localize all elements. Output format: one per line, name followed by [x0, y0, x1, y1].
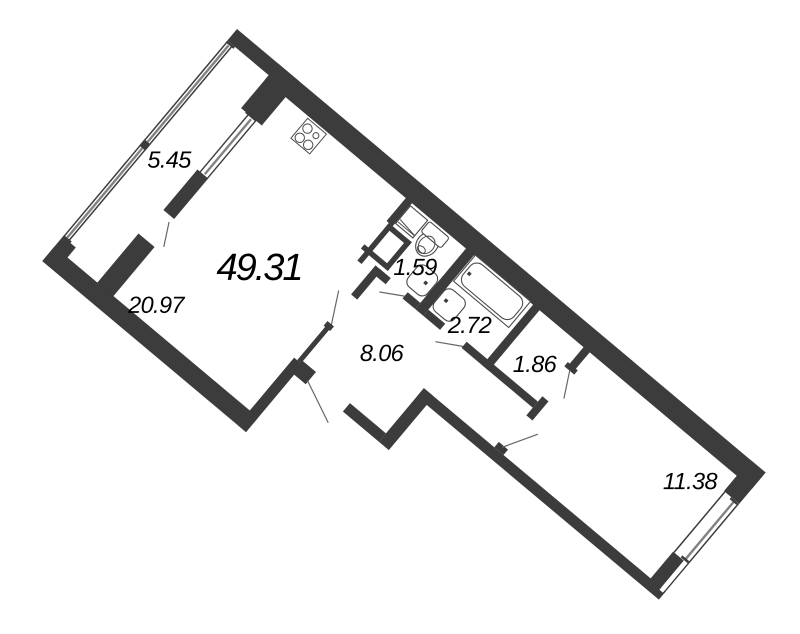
svg-text:20.97: 20.97: [127, 292, 185, 318]
svg-text:5.45: 5.45: [147, 147, 192, 173]
svg-text:11.38: 11.38: [663, 468, 718, 494]
svg-text:1.59: 1.59: [393, 254, 437, 280]
svg-text:8.06: 8.06: [360, 340, 405, 366]
svg-text:1.86: 1.86: [513, 351, 558, 377]
svg-text:49.31: 49.31: [216, 247, 301, 289]
svg-text:2.72: 2.72: [447, 312, 492, 338]
